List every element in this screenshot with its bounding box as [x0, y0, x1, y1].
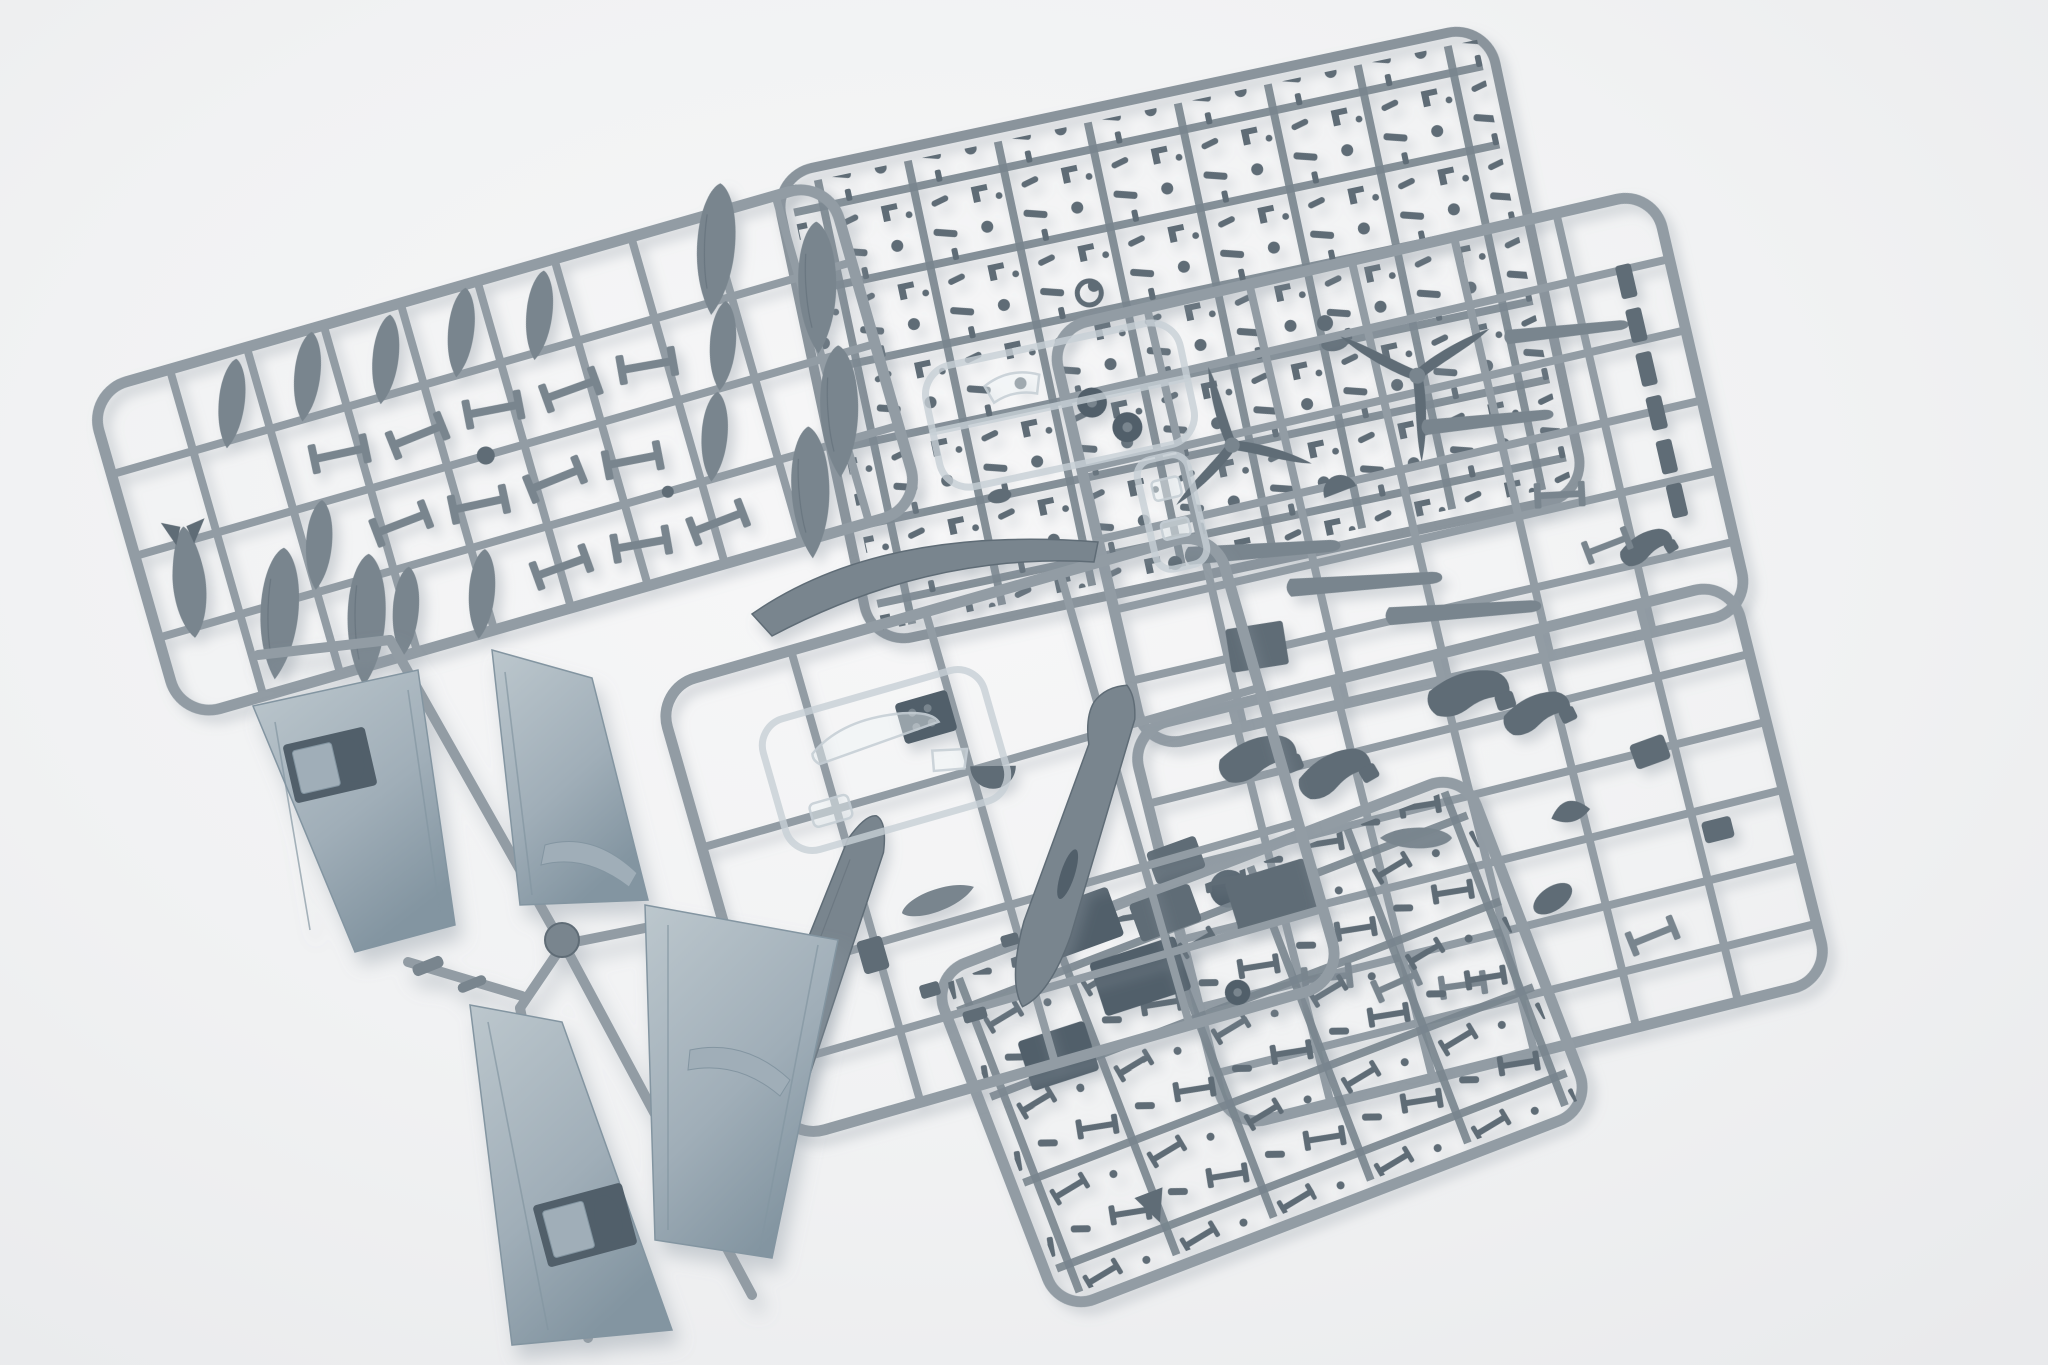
model-kit-sprues-photo [0, 0, 2048, 1365]
photo-stage [0, 0, 2048, 1365]
runner-hub [545, 923, 579, 957]
